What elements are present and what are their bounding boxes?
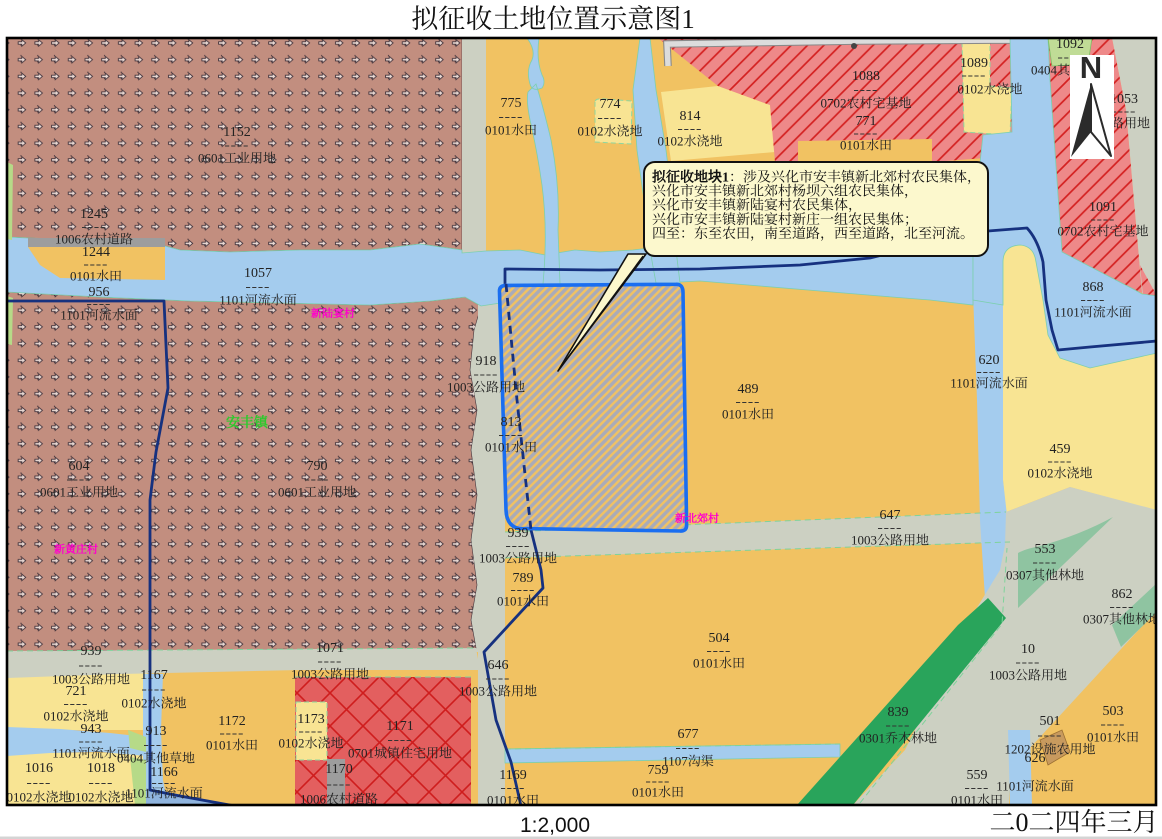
svg-text:兴化市安丰镇新陆宴村新庄一组农民集体；: 兴化市安丰镇新陆宴村新庄一组农民集体； [652, 212, 918, 228]
svg-text:721: 721 [66, 684, 87, 699]
svg-text:0701城镇住宅用地: 0701城镇住宅用地 [348, 746, 452, 761]
svg-text:1167: 1167 [140, 668, 167, 683]
svg-text:771: 771 [856, 114, 877, 129]
svg-text:1003公路用地: 1003公路用地 [52, 672, 130, 687]
svg-text:0101水田: 0101水田 [206, 738, 258, 753]
svg-text:775: 775 [501, 96, 522, 111]
svg-text:0102水浇地: 0102水浇地 [1027, 466, 1092, 481]
svg-text:620: 620 [979, 353, 1000, 368]
svg-text:939: 939 [81, 644, 102, 659]
svg-text:1171: 1171 [386, 719, 413, 734]
svg-text:新北郊村: 新北郊村 [675, 512, 719, 525]
svg-text:1172: 1172 [218, 714, 245, 729]
svg-text:0101水田: 0101水田 [840, 138, 892, 153]
svg-text:1003公路用地: 1003公路用地 [291, 667, 369, 682]
svg-text:489: 489 [738, 382, 759, 397]
svg-text:0404其他草地: 0404其他草地 [117, 751, 195, 766]
svg-text:862: 862 [1112, 587, 1133, 602]
svg-text:1003公路用地: 1003公路用地 [851, 533, 929, 548]
svg-text:559: 559 [967, 768, 988, 783]
svg-text:1169: 1169 [499, 768, 526, 783]
svg-text:新黄庄村: 新黄庄村 [54, 543, 98, 556]
svg-text:501: 501 [1040, 714, 1061, 729]
svg-text:1101河流水面: 1101河流水面 [996, 779, 1074, 794]
svg-text:0101水田: 0101水田 [497, 594, 549, 609]
svg-text:1245: 1245 [80, 207, 108, 222]
svg-text:1016: 1016 [25, 761, 53, 776]
svg-text:789: 789 [513, 571, 534, 586]
svg-text:647: 647 [880, 508, 901, 523]
svg-text:0307其他林地: 0307其他林地 [1083, 612, 1161, 627]
svg-text:626: 626 [1025, 751, 1046, 766]
svg-text:1091: 1091 [1089, 200, 1117, 215]
svg-text:1057: 1057 [244, 266, 272, 281]
svg-text:1003公路用地: 1003公路用地 [989, 668, 1067, 683]
svg-text:939: 939 [508, 526, 529, 541]
svg-text:1003公路用地: 1003公路用地 [479, 551, 557, 566]
svg-text:0102水浇地: 0102水浇地 [957, 82, 1022, 97]
svg-text:1107沟渠: 1107沟渠 [662, 754, 714, 769]
svg-text:1089: 1089 [960, 56, 988, 71]
svg-text:1101河流水面: 1101河流水面 [1054, 305, 1132, 320]
svg-text:774: 774 [600, 97, 621, 112]
svg-text:1202设施农用地: 1202设施农用地 [1004, 742, 1095, 757]
svg-text:790: 790 [307, 459, 328, 474]
svg-text:0102水浇地: 0102水浇地 [121, 696, 186, 711]
svg-text:553: 553 [1035, 542, 1056, 557]
svg-text:兴化市安丰镇新北郊村杨坝六组农民集体，: 兴化市安丰镇新北郊村杨坝六组农民集体， [652, 184, 918, 200]
svg-text:四至：东至农田，南至道路，西至道路，北至河流。: 四至：东至农田，南至道路，西至道路，北至河流。 [652, 226, 974, 242]
svg-text:0102水浇地: 0102水浇地 [6, 790, 71, 805]
svg-text:拟征收土地位置示意图1: 拟征收土地位置示意图1 [411, 4, 695, 34]
svg-text:0102水浇地: 0102水浇地 [278, 736, 343, 751]
svg-text:0601工业用地: 0601工业用地 [40, 485, 118, 500]
svg-text:0301乔木林地: 0301乔木林地 [859, 731, 937, 746]
svg-text:646: 646 [488, 658, 509, 673]
svg-text:10: 10 [1021, 642, 1035, 657]
svg-text:0601工业用地: 0601工业用地 [198, 151, 276, 166]
svg-text:1101河流水面: 1101河流水面 [125, 786, 203, 801]
svg-text:1101河流水面: 1101河流水面 [950, 376, 1028, 391]
svg-text:0102水浇地: 0102水浇地 [657, 134, 722, 149]
svg-text:新陆宴村: 新陆宴村 [311, 307, 355, 320]
svg-text:913: 913 [146, 724, 167, 739]
svg-text:918: 918 [476, 354, 497, 369]
svg-text:0307其他林地: 0307其他林地 [1006, 568, 1084, 583]
svg-text:503: 503 [1103, 704, 1124, 719]
svg-text:459: 459 [1050, 442, 1071, 457]
svg-text:1173: 1173 [297, 712, 324, 727]
svg-text:0101水田: 0101水田 [632, 785, 684, 800]
svg-text:0702农村宅基地: 0702农村宅基地 [820, 96, 911, 111]
svg-text:二0二四年三月: 二0二四年三月 [989, 808, 1158, 837]
svg-text:943: 943 [81, 722, 102, 737]
svg-text:868: 868 [1083, 280, 1104, 295]
svg-text:1071: 1071 [316, 641, 344, 656]
svg-text:0702农村宅基地: 0702农村宅基地 [1057, 224, 1148, 239]
svg-text:兴化市安丰镇新陆宴村农民集体，: 兴化市安丰镇新陆宴村农民集体， [652, 198, 862, 214]
svg-text:1170: 1170 [325, 762, 352, 777]
svg-text:839: 839 [888, 705, 909, 720]
svg-text:759: 759 [648, 763, 669, 778]
svg-text:0102水浇地: 0102水浇地 [577, 124, 642, 139]
svg-text:1003公路用地: 1003公路用地 [459, 684, 537, 699]
svg-text:1018: 1018 [87, 761, 115, 776]
svg-text:0101水田: 0101水田 [485, 440, 537, 455]
svg-text:安丰镇: 安丰镇 [226, 414, 268, 431]
svg-text:0601工业用地: 0601工业用地 [278, 485, 356, 500]
svg-text:604: 604 [69, 459, 90, 474]
svg-text:0101水田: 0101水田 [485, 123, 537, 138]
svg-text:1101河流水面: 1101河流水面 [219, 293, 297, 308]
svg-text:504: 504 [709, 631, 730, 646]
svg-text:0101水田: 0101水田 [693, 656, 745, 671]
svg-text:0102水浇地: 0102水浇地 [68, 790, 133, 805]
svg-text:N: N [1080, 50, 1102, 85]
svg-text:813: 813 [501, 415, 522, 430]
svg-text:拟征收地块1：涉及兴化市安丰镇新北郊村农民集体，: 拟征收地块1：涉及兴化市安丰镇新北郊村农民集体， [652, 169, 981, 186]
svg-text:814: 814 [680, 109, 701, 124]
svg-text:1:2,000: 1:2,000 [520, 814, 590, 837]
svg-text:0101水田: 0101水田 [722, 407, 774, 422]
svg-text:0101水田: 0101水田 [70, 269, 122, 284]
svg-text:1003公路用地: 1003公路用地 [447, 380, 525, 395]
svg-text:956: 956 [89, 285, 110, 300]
svg-text:1053: 1053 [1110, 92, 1138, 107]
svg-text:1101河流水面: 1101河流水面 [60, 308, 138, 323]
svg-text:1152: 1152 [223, 125, 250, 140]
svg-text:1166: 1166 [150, 765, 177, 780]
svg-text:1244: 1244 [82, 245, 110, 260]
svg-text:1088: 1088 [852, 69, 880, 84]
svg-text:677: 677 [678, 727, 699, 742]
